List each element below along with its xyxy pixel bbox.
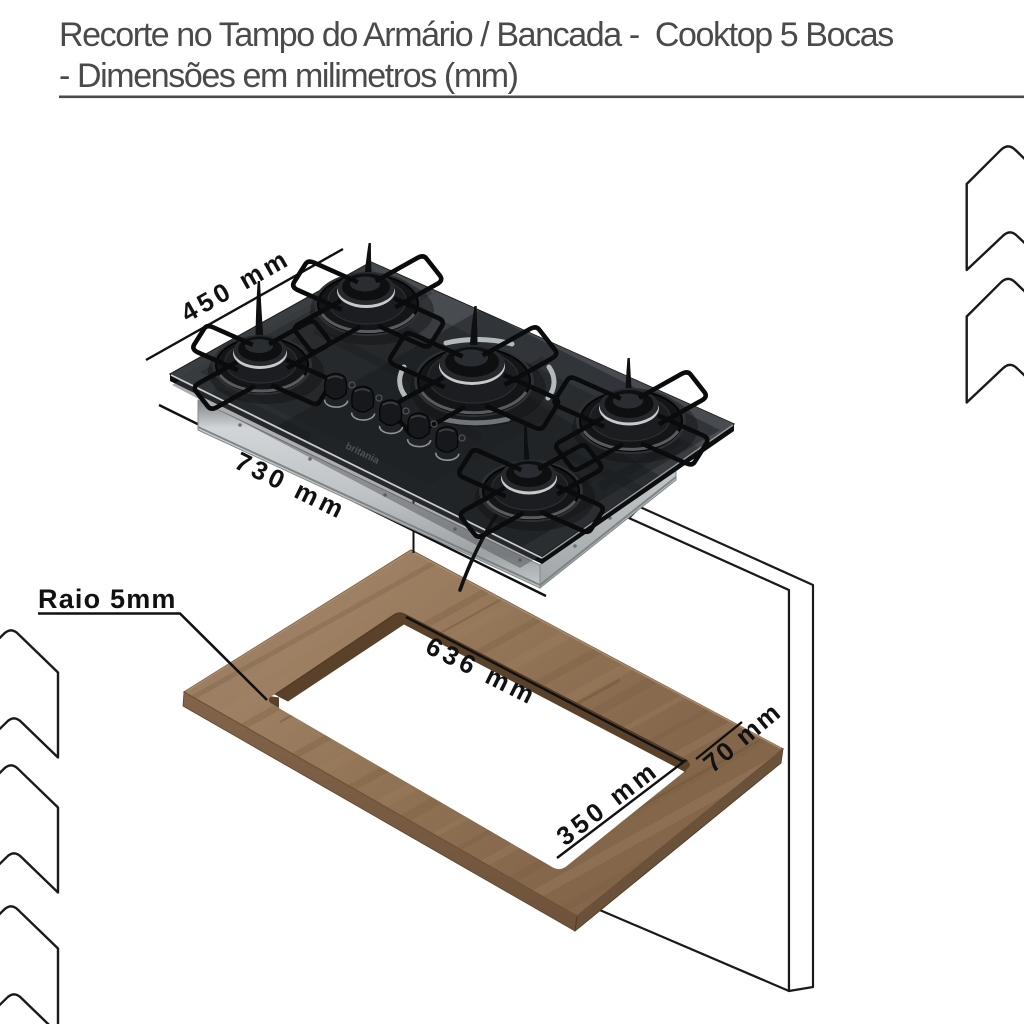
svg-text:Raio 5mm: Raio 5mm xyxy=(38,584,177,614)
svg-text:- Dimensões em milimetros (mm): - Dimensões em milimetros (mm) xyxy=(59,57,518,95)
svg-text:Recorte no Tampo do Armário /: Recorte no Tampo do Armário / Bancada - … xyxy=(59,16,893,54)
